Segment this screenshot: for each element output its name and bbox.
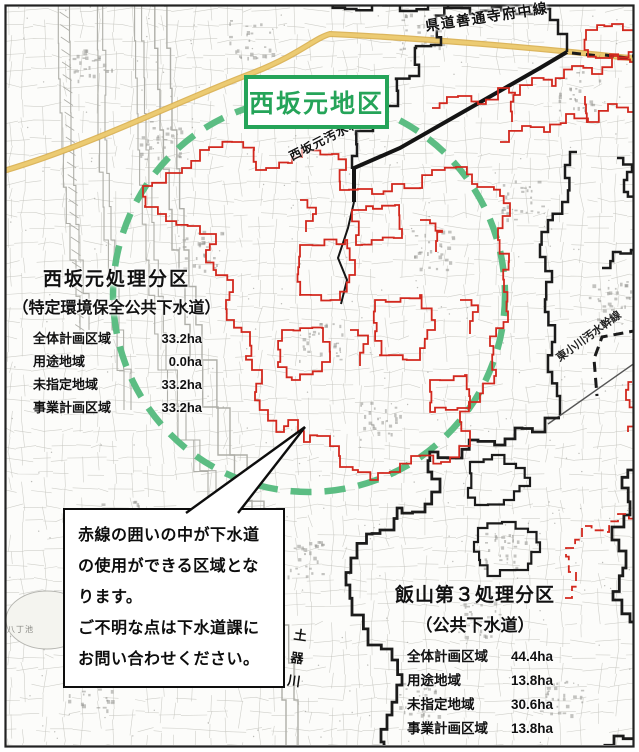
stat-row: 事業計画区域 13.8ha [389,717,561,741]
stat-row: 事業計画区域 33.2ha [4,396,229,419]
district-title-box: 西坂元地区 [244,75,389,129]
district-title-text: 西坂元地区 [249,84,384,120]
west-district-stats: 西坂元処理分区 （特定環境保全公共下水道） 全体計画区域 33.2ha 用途地域… [4,264,229,419]
stat-row: 用途地域 0.0ha [4,350,229,373]
callout-note-box: 赤線の囲いの中が下水道 の使用ができる区域とな ります。 ご不明な点は下水道課に… [63,508,285,688]
stat-row: 用途地域 13.8ha [389,669,561,693]
pond-name-label: 八丁池 [7,624,34,635]
west-district-title: 西坂元処理分区 [4,264,229,291]
stat-row: 全体計画区域 33.2ha [4,327,229,350]
stat-row: 全体計画区域 44.4ha [389,645,561,669]
iiyama-district-stats: 飯山第３処理分区 （公共下水道） 全体計画区域 44.4ha 用途地域 13.8… [389,580,561,741]
iiyama-district-subtitle: （公共下水道） [389,611,561,636]
stat-row: 未指定地域 33.2ha [4,373,229,396]
iiyama-district-title: 飯山第３処理分区 [389,580,561,607]
stat-row: 未指定地域 30.6ha [389,693,561,717]
west-district-subtitle: （特定環境保全公共下水道） [4,294,229,318]
sewerage-district-map: 西坂元地区 県道善通寺府中線 西坂元汚水幹線 東小川汚水幹線 土器川 八丁池 西… [0,0,639,752]
